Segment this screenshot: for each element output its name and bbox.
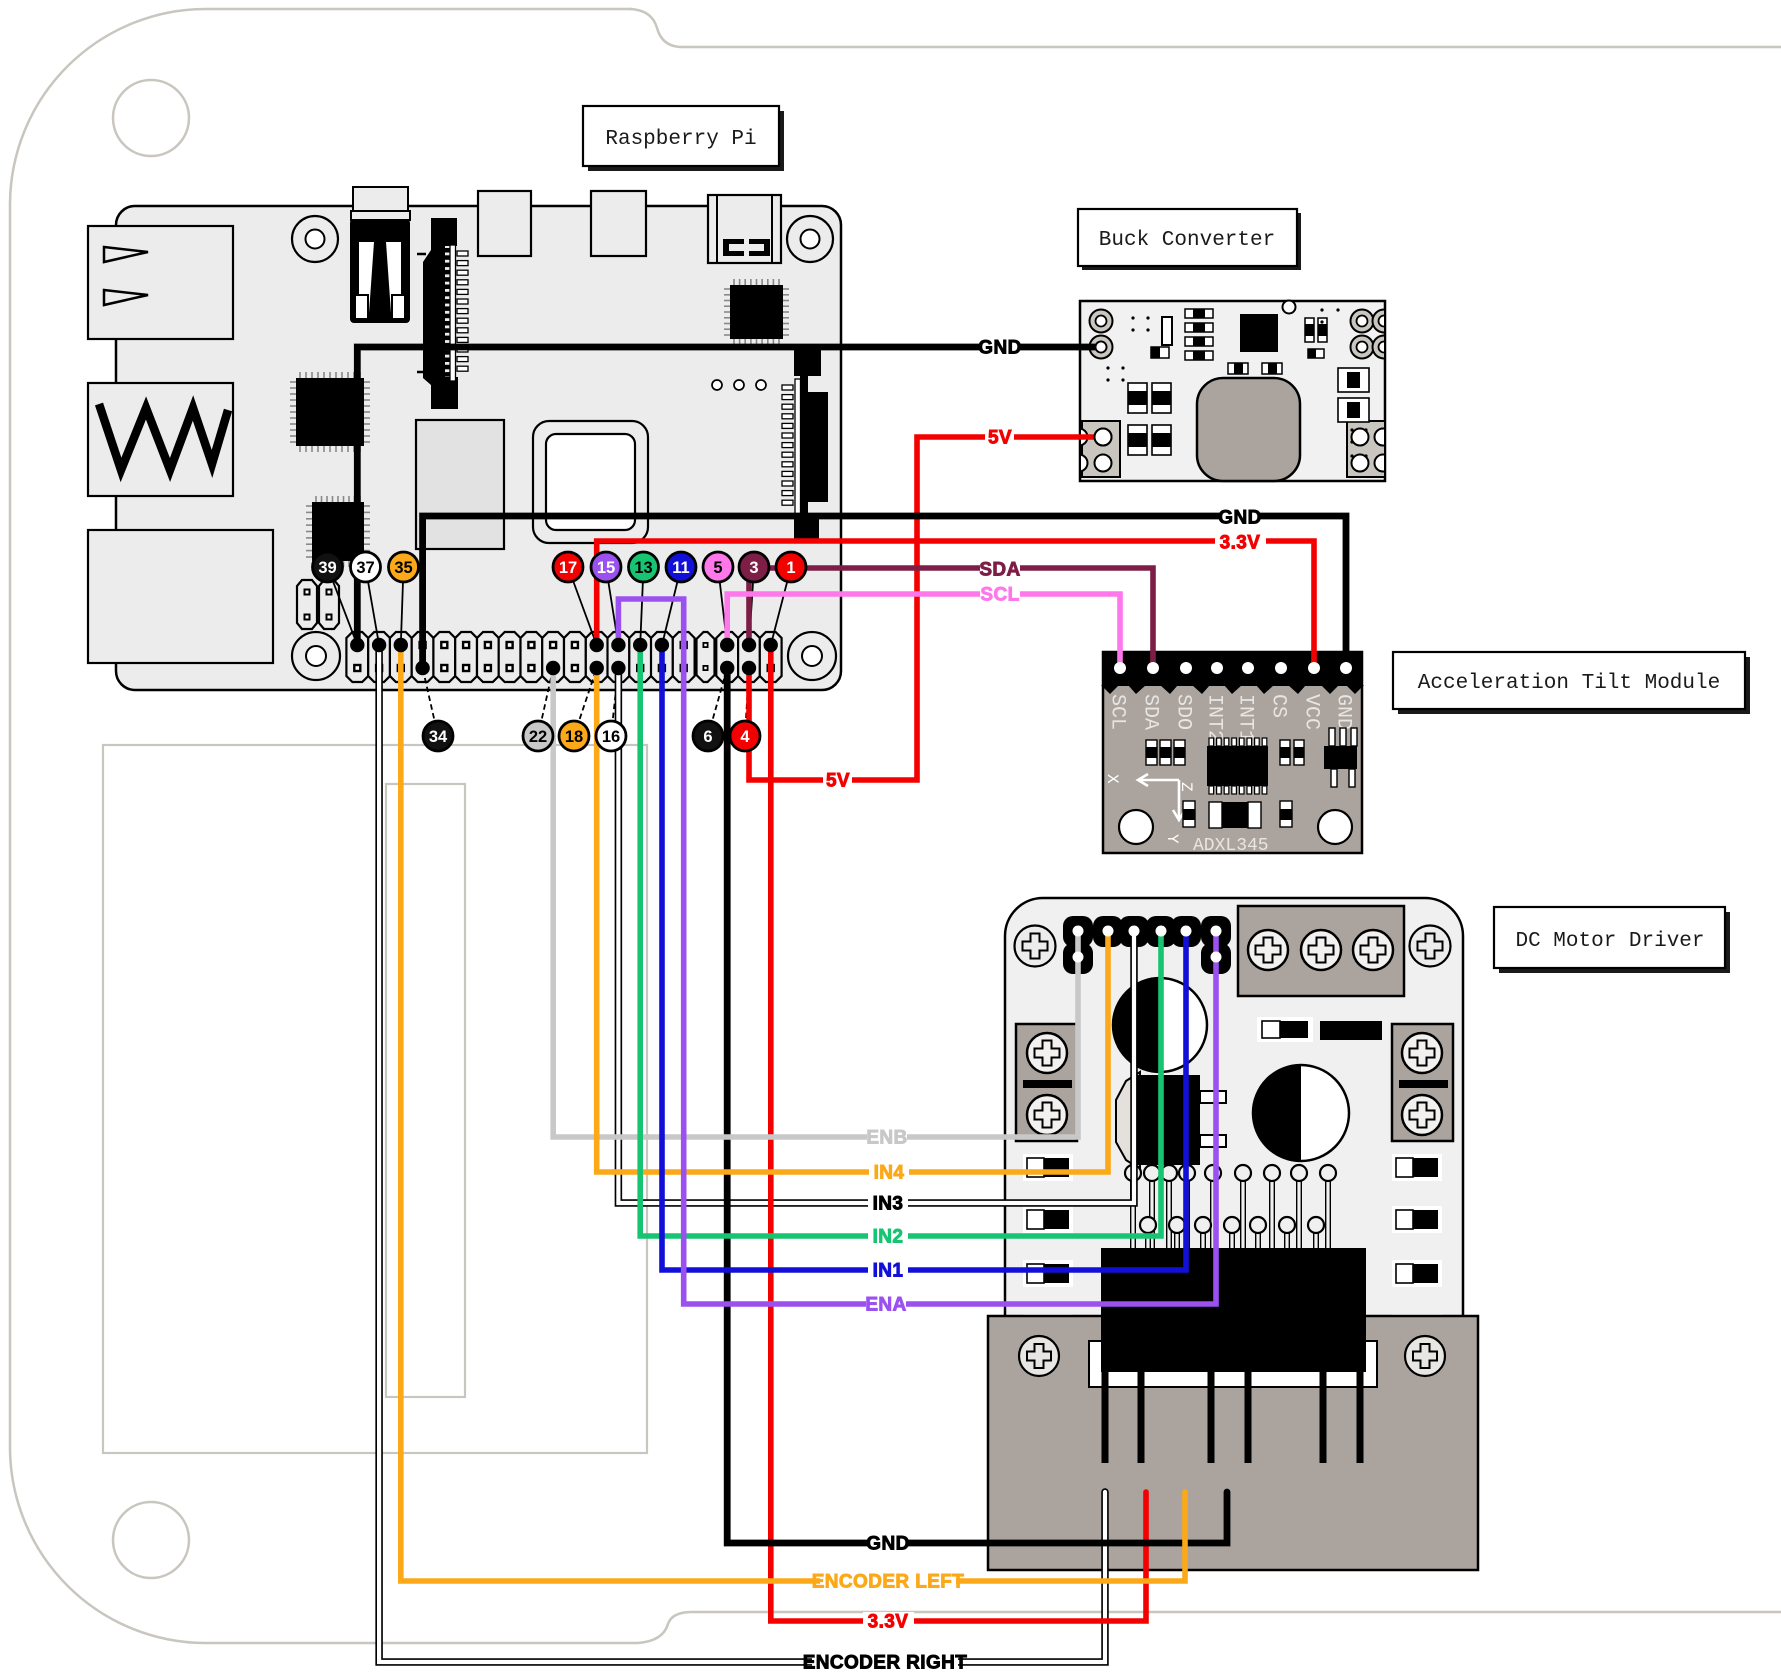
svg-text:35: 35 xyxy=(394,559,412,577)
svg-text:INT1: INT1 xyxy=(1234,694,1257,742)
svg-text:17: 17 xyxy=(559,559,577,577)
svg-text:ENCODER LEFT: ENCODER LEFT xyxy=(812,1572,965,1593)
svg-text:Acceleration Tilt Module: Acceleration Tilt Module xyxy=(1418,672,1720,695)
svg-text:ENB: ENB xyxy=(866,1128,907,1149)
svg-text:GND: GND xyxy=(1218,508,1261,529)
svg-text:GND: GND xyxy=(1332,694,1355,730)
svg-text:39: 39 xyxy=(318,559,336,577)
svg-text:VCC: VCC xyxy=(1300,694,1323,730)
svg-text:37: 37 xyxy=(356,559,374,577)
svg-text:SCL: SCL xyxy=(980,585,1019,606)
svg-text:X: X xyxy=(1103,774,1121,784)
svg-text:ENA: ENA xyxy=(865,1295,906,1316)
svg-text:5V: 5V xyxy=(826,771,850,792)
svg-text:15: 15 xyxy=(597,559,615,577)
svg-text:16: 16 xyxy=(602,728,620,746)
svg-text:5: 5 xyxy=(713,559,722,577)
svg-text:DC Motor Driver: DC Motor Driver xyxy=(1515,930,1704,953)
svg-text:4: 4 xyxy=(740,728,750,746)
svg-text:5V: 5V xyxy=(988,428,1012,449)
svg-text:IN2: IN2 xyxy=(873,1227,904,1248)
svg-text:GND: GND xyxy=(978,338,1021,359)
svg-text:SDA: SDA xyxy=(1139,694,1162,730)
svg-text:34: 34 xyxy=(429,728,448,746)
svg-text:22: 22 xyxy=(529,728,547,746)
svg-text:Raspberry Pi: Raspberry Pi xyxy=(605,128,756,151)
svg-text:6: 6 xyxy=(703,728,712,746)
svg-text:ADXL345: ADXL345 xyxy=(1193,836,1269,856)
svg-text:Buck Converter: Buck Converter xyxy=(1099,229,1275,252)
svg-text:13: 13 xyxy=(634,559,652,577)
svg-text:SDA: SDA xyxy=(979,560,1020,581)
svg-text:CS: CS xyxy=(1267,694,1290,718)
svg-text:ENCODER RIGHT: ENCODER RIGHT xyxy=(803,1653,968,1674)
svg-text:IN4: IN4 xyxy=(874,1163,905,1184)
svg-text:INT2: INT2 xyxy=(1203,694,1226,742)
svg-text:18: 18 xyxy=(565,728,583,746)
svg-text:3.3V: 3.3V xyxy=(868,1612,909,1633)
svg-text:IN3: IN3 xyxy=(873,1194,904,1215)
svg-text:1: 1 xyxy=(786,559,795,577)
svg-text:GND: GND xyxy=(866,1534,909,1555)
svg-text:11: 11 xyxy=(672,559,689,577)
svg-text:SCL: SCL xyxy=(1106,694,1129,730)
svg-text:Z: Z xyxy=(1177,782,1195,792)
svg-text:3: 3 xyxy=(749,559,758,577)
svg-text:3.3V: 3.3V xyxy=(1220,533,1261,554)
svg-text:SDO: SDO xyxy=(1172,694,1195,730)
svg-text:IN1: IN1 xyxy=(873,1261,904,1282)
svg-text:Y: Y xyxy=(1163,834,1181,844)
